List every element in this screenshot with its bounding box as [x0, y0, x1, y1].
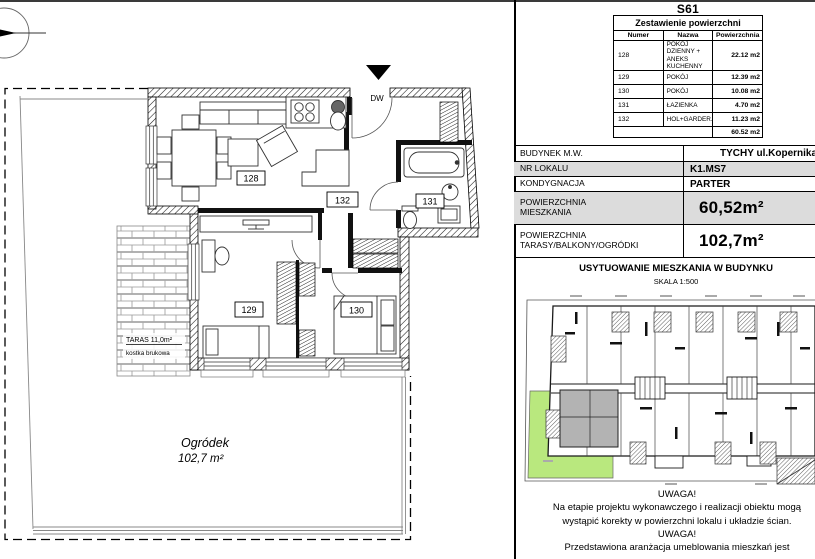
floor-value: PARTER: [683, 177, 815, 191]
note-line-2: wystąpić korekty w powierzchni lokalu i …: [515, 516, 815, 527]
table-total-row: 60.52 m2: [614, 127, 763, 138]
bathroom-fixtures: [402, 148, 464, 229]
garden-name: Ogródek: [181, 436, 230, 450]
unit-number-value: K1.MS7: [683, 162, 815, 176]
table-row: 129 POKÓJ 12.39 m2: [614, 71, 763, 85]
table-row: 131 ŁAZIENKA 4.70 m2: [614, 99, 763, 113]
table-row: 130 POKÓJ 10.08 m2: [614, 85, 763, 99]
apartment-area-value: 60,52m²: [683, 192, 815, 224]
info-row-powierzchnia-mieszkania: POWIERZCHNIAMIESZKANIA 60,52m²: [514, 192, 815, 225]
sheet-code: S61: [613, 2, 763, 16]
room-label-bedroom2: 130: [349, 306, 364, 316]
room-labels: 128 132 131 129 130: [235, 171, 444, 317]
location-section-title: USYTUOWANIE MIESZKANIA W BUDYNKU: [515, 263, 815, 274]
room-label-living: 128: [243, 174, 258, 184]
table-row: 132 HOL+GARDER. 11.23 m2: [614, 113, 763, 127]
note-line-3: Przedstawiona aranżacja umeblowania mies…: [515, 542, 815, 553]
room-label-bedroom1: 129: [241, 305, 256, 315]
info-row-powierzchnia-tarasy: POWIERZCHNIATARASY/BALKONY/OGRÓDKI 102,7…: [514, 225, 815, 258]
garden-area: 102,7 m²: [178, 453, 225, 465]
garden-labels: Ogródek 102,7 m²: [178, 436, 230, 465]
terrace-labels: TARAS 11,0m² kostka brukowa: [123, 333, 185, 359]
building-value: TYCHY ul.Kopernika: [683, 146, 815, 161]
site-plan-drawing: [515, 292, 815, 488]
terrace-area-value: 102,7m²: [683, 225, 815, 257]
terrace-sublabel: kostka brukowa: [126, 350, 170, 357]
note-warning-2: UWAGA!: [515, 529, 815, 540]
terrace-label: TARAS 11,0m²: [126, 337, 173, 344]
kitchen-furniture: [286, 97, 349, 186]
entrance-marker-icon: [366, 65, 391, 80]
col-header-powierzchnia: Powierzchnia: [713, 31, 763, 41]
site-apartment-highlight: [560, 390, 618, 447]
note-line-1: Na etapie projektu wykonawczego i realiz…: [515, 502, 815, 513]
info-row-budynek: BUDYNEK M.W. TYCHY ul.Kopernika: [514, 146, 815, 162]
entrance-door-label: DW: [370, 94, 384, 103]
apartment-info-table: BUDYNEK M.W. TYCHY ul.Kopernika NR LOKAL…: [514, 145, 815, 258]
floor-plan-sheet: { "sheet": { "code": "S61" }, "areas_tab…: [0, 0, 815, 559]
note-warning-1: UWAGA!: [515, 489, 815, 500]
living-room-furniture: [157, 102, 297, 201]
areas-total: 60.52 m2: [713, 127, 763, 138]
col-header-numer: Numer: [614, 31, 664, 41]
room-label-hall: 132: [335, 196, 350, 206]
floorplan-drawing: 128 132 131 129 130 DW TARAS 11,0m² kost…: [0, 0, 515, 559]
north-arrow-icon: [0, 8, 46, 58]
info-row-kondygnacja: KONDYGNACJA PARTER: [514, 177, 815, 192]
col-header-nazwa: Nazwa: [663, 31, 713, 41]
areas-table-title: Zestawienie powierzchni: [614, 16, 763, 31]
info-row-nr-lokalu: NR LOKALU K1.MS7: [514, 162, 815, 177]
room-label-bath: 131: [422, 197, 437, 207]
areas-table: Zestawienie powierzchni Numer Nazwa Powi…: [613, 15, 763, 138]
table-row: 128 POKÓJ DZIENNY + ANEKS KUCHENNY 22.12…: [614, 41, 763, 71]
location-scale: SKALA 1:500: [515, 277, 815, 286]
